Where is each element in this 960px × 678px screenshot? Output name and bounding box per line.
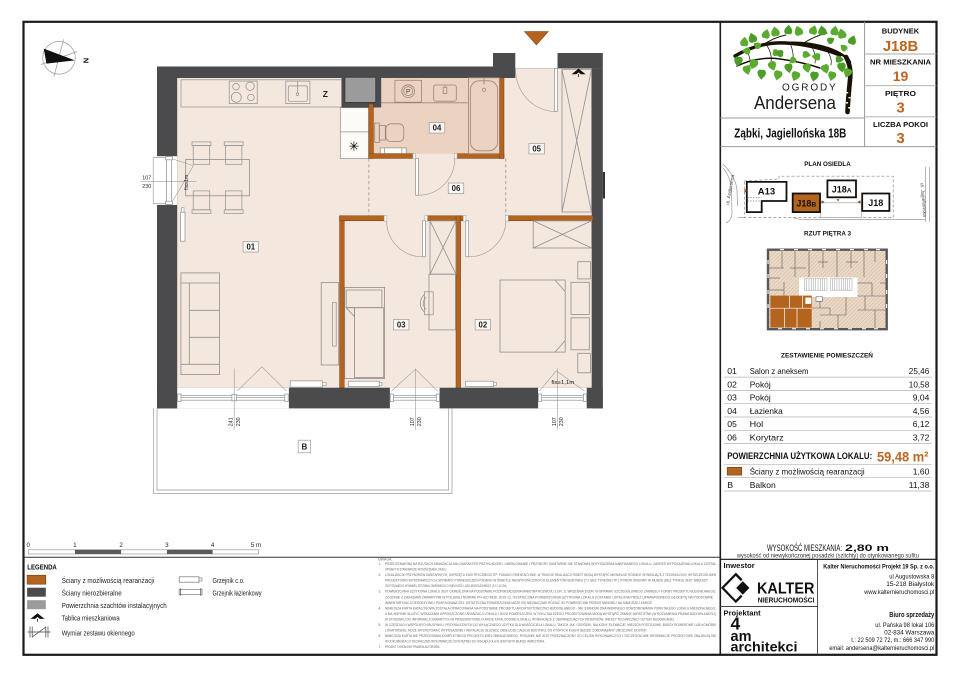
svg-text:A13: A13	[758, 187, 775, 198]
svg-text:UWAGA:: UWAGA:	[378, 558, 392, 562]
svg-text:107: 107	[410, 417, 416, 426]
svg-text:5.: 5.	[379, 623, 382, 627]
svg-text:4: 4	[211, 542, 215, 549]
svg-text:230: 230	[559, 417, 565, 426]
svg-text:ul Augustowska 8: ul Augustowska 8	[889, 574, 934, 581]
svg-text:Salon z aneksem: Salon z aneksem	[750, 366, 809, 376]
svg-text:02-834 Warszawa: 02-834 Warszawa	[884, 630, 934, 637]
svg-text:J18: J18	[868, 198, 883, 208]
svg-text:Ząbki, Jagiellońska 18B: Ząbki, Jagiellońska 18B	[734, 127, 846, 141]
svg-text:PROJEKTOWO-WYKONAWCZYCH. WYMIA: PROJEKTOWO-WYKONAWCZYCH. WYMIARY POMIESZ…	[385, 578, 709, 583]
svg-text:03: 03	[397, 321, 406, 330]
svg-text:B: B	[727, 480, 733, 490]
svg-text:230: 230	[417, 417, 423, 426]
svg-text:Tablica mieszkaniowa: Tablica mieszkaniowa	[62, 615, 120, 622]
svg-text:241: 241	[229, 417, 235, 426]
svg-text:NR MIESZKANIA: NR MIESZKANIA	[870, 58, 932, 67]
svg-text:PROJEKT CHRONIONY PRAWEM AUTOR: PROJEKT CHRONIONY PRAWEM AUTORSKIM.	[385, 645, 440, 649]
svg-text:1: 1	[73, 542, 77, 549]
svg-text:BUDYNEK: BUDYNEK	[882, 27, 920, 36]
svg-text:fix≥1,1m: fix≥1,1m	[551, 380, 574, 386]
svg-text:Grzejnik c.o.: Grzejnik c.o.	[213, 578, 245, 585]
svg-text:W DOKUMENTACJI TECHNICZNO-WYKO: W DOKUMENTACJI TECHNICZNO-WYKONAWCZEJ DO…	[385, 639, 545, 644]
svg-text:LEGENDA: LEGENDA	[27, 562, 57, 571]
svg-text:OPISANY W STANDARDZIE WYKOŃCZE: OPISANY W STANDARDZIE WYKOŃCZENIA LOKALU…	[385, 568, 447, 572]
svg-text:B: B	[302, 443, 308, 452]
svg-text:INWENTARYZACJI GEODEZYJNEJ POW: INWENTARYZACJI GEODEZYJNEJ POWYKONAWCZEJ…	[385, 600, 653, 605]
svg-text:59,48 m²: 59,48 m²	[877, 449, 929, 465]
svg-text:Powierzchnia szachtów instalac: Powierzchnia szachtów instalacyjnych	[62, 603, 167, 610]
svg-text:wysokość od niewykończonej pos: wysokość od niewykończonej posadzki (szl…	[736, 552, 919, 559]
svg-text:Łazienka: Łazienka	[750, 406, 783, 416]
svg-text:Ściany nierozbieralne: Ściany nierozbieralne	[62, 588, 122, 597]
svg-text:OD PODANEGO WYMIARU ZESTAWU OK: OD PODANEGO WYMIARU ZESTAWU OKIENNEGO O …	[385, 583, 507, 588]
svg-text:4,56: 4,56	[913, 406, 930, 416]
svg-text:POWIERZCHNIA UŻYTKOWA LOKALU:: POWIERZCHNIA UŻYTKOWA LOKALU:	[727, 451, 872, 461]
svg-text:A MA JEDYNIE SŁUŻYĆ WSKAZANIU: A MA JEDYNIE SŁUŻYĆ WSKAZANIU UPROSZCZON…	[385, 611, 716, 616]
svg-text:230: 230	[142, 184, 151, 190]
svg-text:P: P	[406, 89, 411, 96]
svg-text:PRZEDSTAWIONA NA RZUTACH ARANŻ: PRZEDSTAWIONA NA RZUTACH ARANŻACJA MA CH…	[385, 561, 716, 566]
svg-text:J18B: J18B	[883, 39, 919, 55]
svg-text:01: 01	[727, 366, 737, 376]
svg-text:05: 05	[727, 419, 737, 429]
svg-text:Inwestor: Inwestor	[724, 561, 755, 570]
svg-text:Andersena: Andersena	[754, 93, 837, 113]
svg-text:05: 05	[532, 145, 541, 154]
svg-text:Pokój: Pokój	[750, 379, 771, 389]
svg-text:06: 06	[727, 433, 737, 443]
svg-text:2: 2	[119, 542, 123, 549]
svg-text:230: 230	[236, 417, 242, 426]
svg-text:fix≥1m: fix≥1m	[184, 175, 190, 190]
svg-text:NINIEJSZA KARTA KATALOGOWA ZOS: NINIEJSZA KARTA KATALOGOWA ZOSTAŁA OPRAC…	[385, 606, 716, 610]
svg-text:3: 3	[896, 99, 904, 116]
svg-text:3.: 3.	[379, 590, 382, 594]
svg-text:Wymiar zestawu okiennego: Wymiar zestawu okiennego	[62, 630, 135, 637]
svg-text:Ściany z możliwością rearanżac: Ściany z możliwością rearanżacji	[62, 576, 155, 585]
svg-text:04: 04	[727, 406, 737, 416]
svg-text:LOKATORSKIE, MOŻE WYSTĘPOWAĆ W: LOKATORSKIE, MOŻE WYSTĘPOWAĆ WYPOSAŻENIE…	[385, 628, 647, 633]
svg-text:LOKALIZACJE PRZYBORÓW SANITARN: LOKALIZACJE PRZYBORÓW SANITARNYCH, OSPRZ…	[385, 572, 716, 577]
svg-text:04: 04	[433, 124, 442, 133]
svg-text:107: 107	[552, 417, 558, 426]
svg-text:7.: 7.	[379, 645, 382, 649]
svg-text:ZESTAWIENIE POMIESZCZEŃ: ZESTAWIENIE POMIESZCZEŃ	[781, 350, 873, 359]
svg-text:10,58: 10,58	[909, 379, 930, 389]
svg-text:POWIERZCHNIA UŻYTKOWA LOKALU J: POWIERZCHNIA UŻYTKOWA LOKALU JEST OKREŚL…	[385, 589, 716, 594]
svg-text:1,60: 1,60	[913, 466, 930, 476]
svg-text:25,46: 25,46	[909, 366, 930, 376]
svg-text:ul. Pańska 98 lokal 106: ul. Pańska 98 lokal 106	[875, 622, 934, 629]
svg-text:01: 01	[246, 243, 255, 252]
svg-text:RZUT PIĘTRA 3: RZUT PIĘTRA 3	[804, 231, 851, 238]
svg-text:Ściany z możliwością rearanżac: Ściany z możliwością rearanżacji	[750, 465, 865, 476]
svg-text:3: 3	[165, 542, 169, 549]
svg-text:19: 19	[893, 68, 909, 84]
svg-text:3,72: 3,72	[913, 433, 930, 443]
svg-text:03: 03	[727, 393, 737, 403]
svg-text:6.: 6.	[379, 634, 382, 638]
svg-text:W STOSUNKU DO INFORMACJI ZAWAR: W STOSUNKU DO INFORMACJI ZAWARTYCH W PRZ…	[385, 617, 675, 622]
svg-text:2.: 2.	[379, 573, 382, 577]
svg-text:N: N	[82, 58, 91, 63]
svg-text:LICZBA POKOI: LICZBA POKOI	[873, 120, 928, 129]
svg-text:6,12: 6,12	[913, 419, 930, 429]
svg-text:architekci: architekci	[731, 640, 798, 655]
svg-text:t.: 22 509 72 72, m.: 666 347: t.: 22 509 72 72, m.: 666 347 990	[851, 637, 934, 644]
svg-text:email: andersena@kalternieruch: email: andersena@kalternieruchomosci.pl	[829, 645, 934, 652]
svg-text:Biuro sprzedaży: Biuro sprzedaży	[889, 612, 934, 619]
svg-text:KALTER: KALTER	[757, 581, 814, 598]
svg-text:PLAN OSIEDLA: PLAN OSIEDLA	[804, 161, 851, 168]
svg-text:15-218 Białystok: 15-218 Białystok	[886, 581, 935, 588]
svg-text:PIĘTRO: PIĘTRO	[885, 89, 916, 98]
svg-text:Grzejnik łazienkowy: Grzejnik łazienkowy	[213, 590, 262, 597]
svg-text:NINIEJSZA KARTA NIE PRZEDSTAWI: NINIEJSZA KARTA NIE PRZEDSTAWIA KOMPLETN…	[385, 633, 717, 638]
svg-text:11,38: 11,38	[909, 480, 930, 490]
svg-text:www.kalternieruchomosci.pl: www.kalternieruchomosci.pl	[863, 589, 934, 596]
svg-text:Hol: Hol	[750, 419, 764, 429]
svg-text:NIERUCHOMOŚCI: NIERUCHOMOŚCI	[758, 595, 815, 604]
svg-text:Z: Z	[323, 89, 328, 99]
svg-text:1.: 1.	[379, 562, 382, 566]
svg-text:Projektant: Projektant	[724, 609, 762, 618]
svg-text:9,04: 9,04	[913, 393, 930, 403]
svg-text:3: 3	[896, 130, 904, 147]
svg-text:ZGODNIE Z ZASADAMI ZAWARTYMI W: ZGODNIE Z ZASADAMI ZAWARTYMI W POLSKIEJ …	[385, 594, 714, 599]
svg-text:Pokój: Pokój	[750, 393, 771, 403]
svg-text:02: 02	[727, 379, 737, 389]
svg-text:0: 0	[27, 542, 31, 549]
svg-text:Korytarz: Korytarz	[750, 433, 784, 443]
svg-text:06: 06	[452, 184, 461, 193]
svg-text:4.: 4.	[379, 606, 382, 610]
svg-text:W CZĘŚCIACH WSPÓLNYCH BUDYNKU,: W CZĘŚCIACH WSPÓLNYCH BUDYNKU, PRZYNALEŻ…	[385, 622, 716, 627]
svg-text:02: 02	[479, 321, 488, 330]
svg-text:5 m: 5 m	[251, 542, 262, 549]
svg-text:107: 107	[142, 176, 151, 182]
svg-text:Balkon: Balkon	[750, 480, 776, 490]
svg-text:Kalter Nieruchomości Projekt 1: Kalter Nieruchomości Projekt 19 Sp. z o.…	[823, 563, 934, 570]
